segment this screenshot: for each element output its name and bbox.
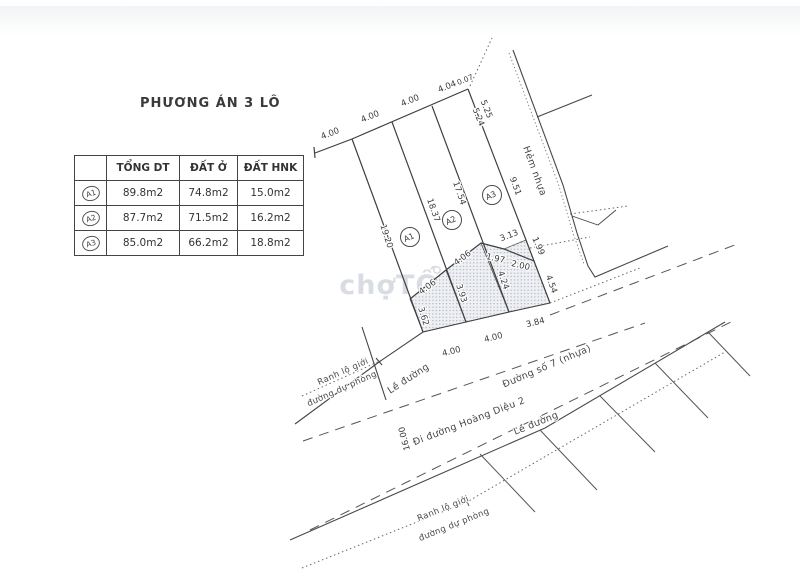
- dim-top-a3: 4.04: [437, 79, 458, 95]
- dim-top-corner: 0.07: [456, 72, 475, 87]
- road-direction-label: Đi đường Hoàng Diệu 2: [412, 395, 527, 448]
- dim-front-a2: 4.00: [483, 331, 504, 345]
- dim-front-a3: 3.84: [525, 316, 546, 330]
- dim-side-div12: 18.37: [424, 197, 441, 223]
- lot-a2-label: A2: [444, 214, 457, 227]
- alley-dotted-edge: [509, 53, 584, 264]
- survey-sheet: PHƯƠNG ÁN 3 LÔ TỔNG DT ĐẤT Ở ĐẤT HNK A1 …: [0, 0, 800, 577]
- dim-side-a1-left: 19.20: [377, 223, 394, 249]
- feature-labels: Hẻm nhựa Lề đường Đi đường Hoàng Diệu 2 …: [305, 145, 593, 544]
- dimension-labels: 4.00 4.00 4.00 4.04 0.07 5.25 5.24 9.51 …: [320, 72, 559, 451]
- lot-a1-label: A1: [402, 231, 415, 244]
- north-curb-label: Lề đường: [386, 361, 432, 396]
- south-curb-line: [290, 322, 725, 540]
- south-lot-divider-lines: [480, 332, 750, 512]
- dim-side-div23: 17.54: [450, 180, 467, 206]
- dim-front-a1: 4.00: [441, 345, 462, 359]
- cadastral-drawing: chợTỐT: [0, 0, 800, 577]
- dim-tri-side: 1.99: [529, 236, 546, 257]
- dim-top-a2: 4.00: [400, 93, 421, 109]
- dim-top-outside: 4.00: [320, 126, 341, 142]
- dim-tri-hyp: 3.13: [499, 228, 520, 244]
- north-corridor-dotted-line: [302, 38, 640, 396]
- dim-road-width: 16.00: [397, 425, 413, 451]
- lot-a3-label: A3: [484, 189, 497, 202]
- alley-label: Hẻm nhựa: [520, 145, 548, 198]
- dim-east-lower: 9.51: [507, 176, 523, 197]
- road-name-label: Đường số 7 (nhựa): [501, 343, 593, 390]
- dim-top-a1: 4.00: [360, 109, 381, 125]
